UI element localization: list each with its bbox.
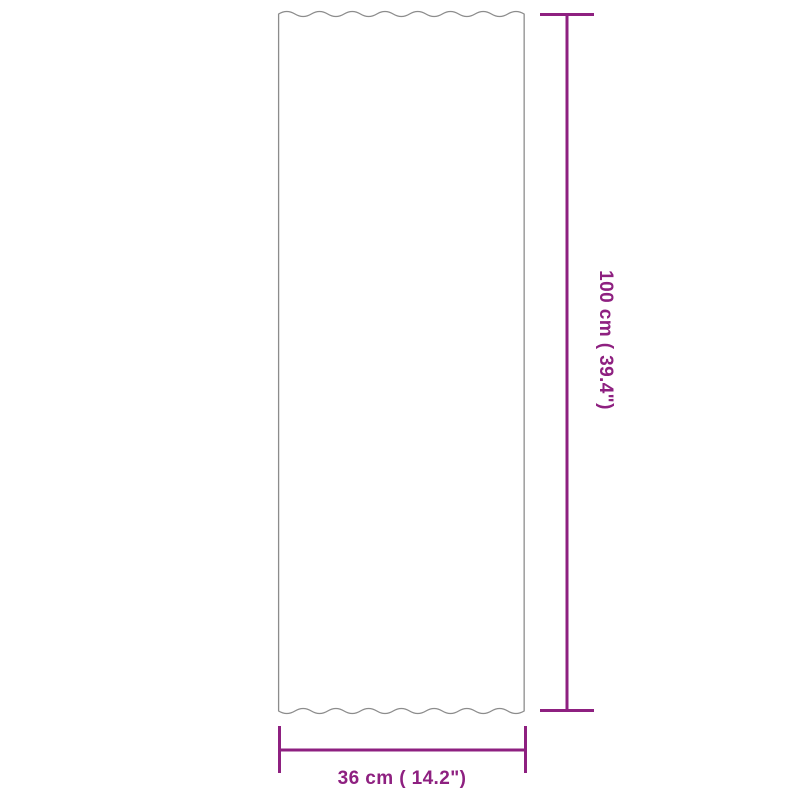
diagram-graphics xyxy=(0,0,800,800)
width-dimension-label: 36 cm ( 14.2") xyxy=(338,768,467,790)
corrugated-panel-outline xyxy=(279,12,525,714)
product-dimension-diagram: 100 cm ( 39.4") 36 cm ( 14.2") xyxy=(0,0,800,800)
height-dimension-line xyxy=(540,15,594,711)
height-dimension-label: 100 cm ( 39.4") xyxy=(594,270,616,410)
width-dimension-line xyxy=(280,726,526,773)
